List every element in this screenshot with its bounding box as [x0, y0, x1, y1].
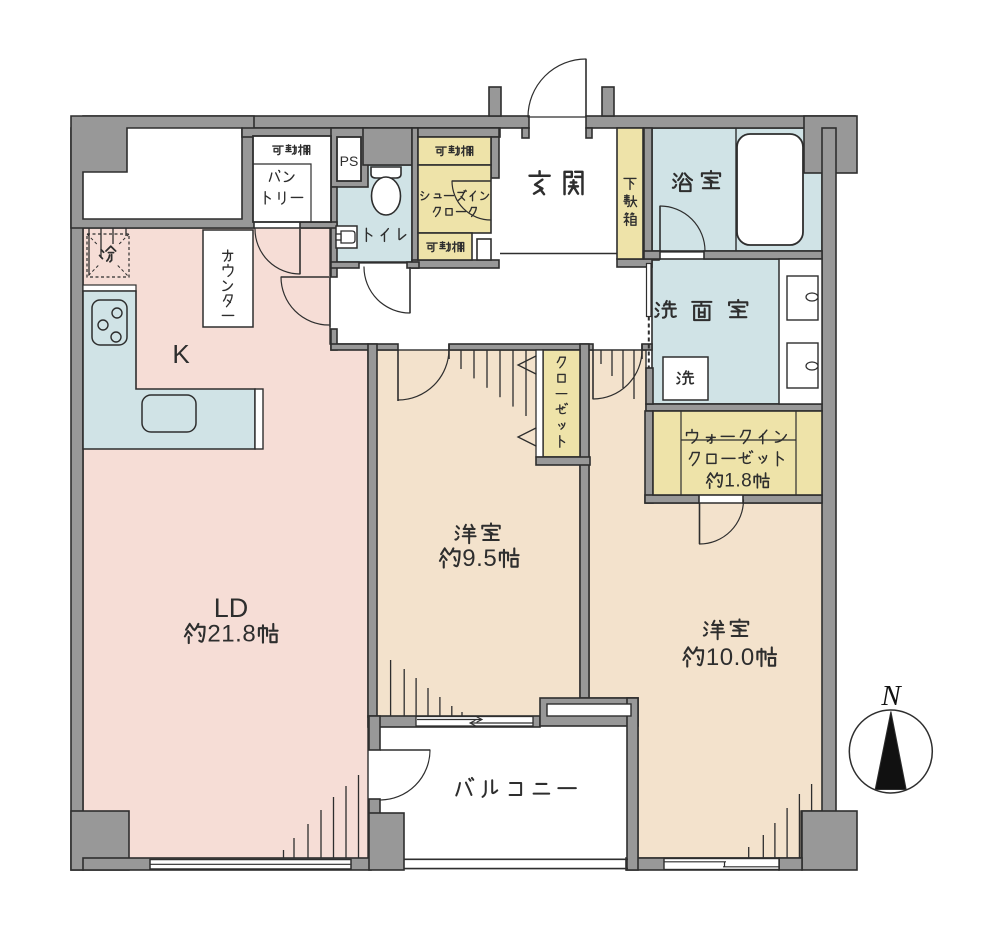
svg-text:0: 0: [741, 644, 754, 671]
svg-text:1: 1: [724, 471, 735, 492]
svg-text:5: 5: [483, 545, 496, 572]
svg-text:.: .: [735, 471, 740, 492]
svg-text:.: .: [476, 545, 483, 572]
svg-text:0: 0: [720, 644, 733, 671]
svg-text:N: N: [880, 680, 902, 712]
svg-text:1: 1: [706, 644, 719, 671]
svg-text:LD: LD: [214, 593, 249, 623]
svg-text:K: K: [172, 339, 190, 369]
svg-text:8: 8: [741, 471, 752, 492]
svg-text:9: 9: [462, 545, 475, 572]
svg-text:8: 8: [242, 621, 255, 648]
svg-text:1: 1: [221, 621, 234, 648]
svg-text:.: .: [235, 621, 242, 648]
svg-text:.: .: [734, 644, 741, 671]
svg-text:2: 2: [207, 621, 220, 648]
svg-text:PS: PS: [340, 153, 359, 169]
